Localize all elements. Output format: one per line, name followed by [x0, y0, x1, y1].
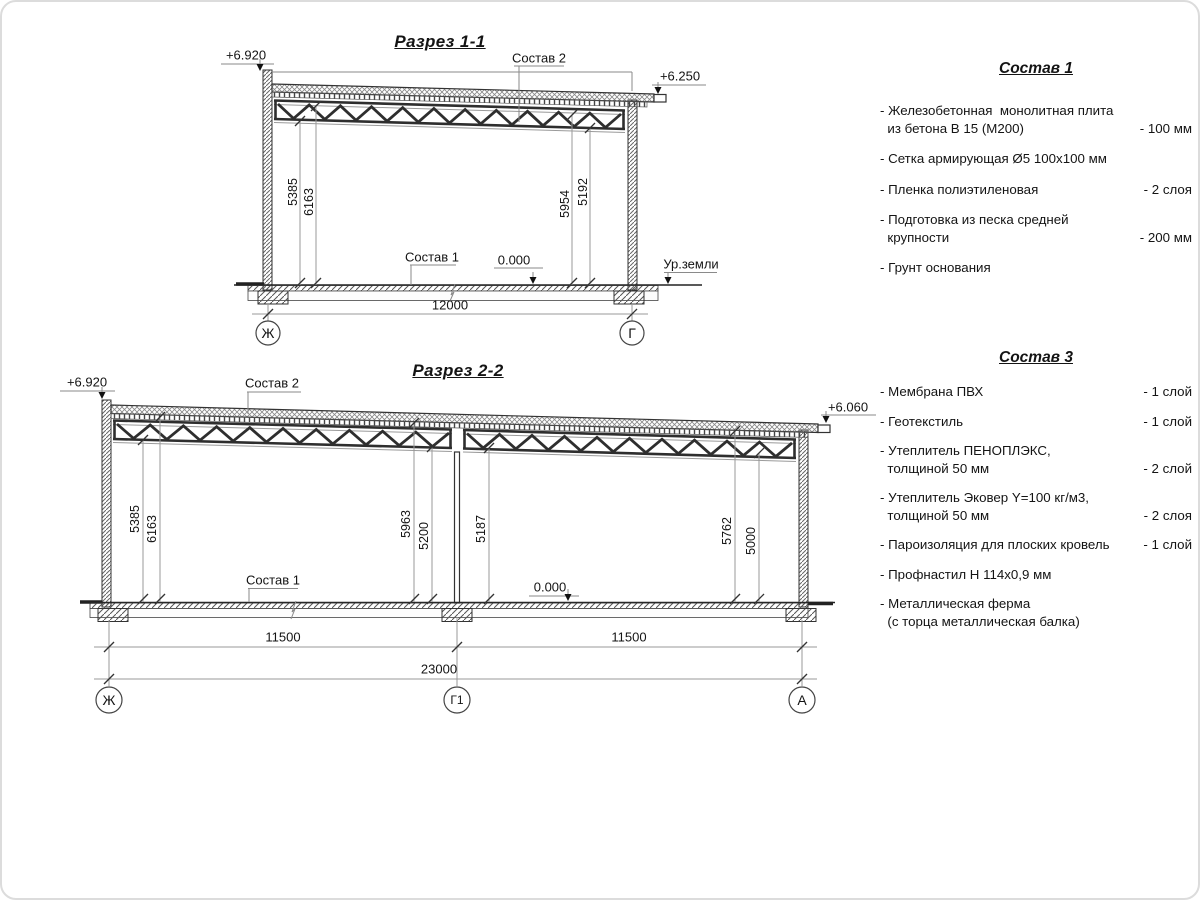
layer-text: - Пароизоляция для плоских кровель: [880, 536, 1110, 554]
section-2-2-title: Разрез 2-2: [412, 361, 503, 381]
layer-value: - 2 слой: [1135, 460, 1192, 478]
layer-value: - 100 мм: [1132, 120, 1192, 138]
span-dim-11500-left: 11500: [265, 630, 300, 645]
layer-item: - Пленка полиэтиленовая - 2 слоя: [880, 181, 1192, 199]
callout-sostav2-s1: Состав 2: [512, 51, 566, 66]
layer-value: - 1 слой: [1135, 413, 1192, 431]
callout-sostav2-s2: Состав 2: [245, 376, 299, 391]
dim-5963-s2: 5963: [399, 510, 413, 538]
layer-item: - Пароизоляция для плоских кровель - 1 с…: [880, 536, 1192, 554]
composition-1-panel: Состав 1 - Железобетонная монолитная пли…: [880, 60, 1192, 290]
layer-item: - Утеплитель ПЕНОПЛЭКС, толщиной 50 мм -…: [880, 442, 1192, 477]
callout-sostav1-s1: Состав 1: [405, 250, 459, 265]
dim-5762-s2: 5762: [720, 517, 734, 545]
span-dim-23000: 23000: [421, 662, 457, 677]
dim-5000-s2: 5000: [744, 527, 758, 555]
layer-text: - Пленка полиэтиленовая: [880, 181, 1038, 199]
span-dim-12000: 12000: [432, 298, 468, 313]
section-1-1-title: Разрез 1-1: [394, 32, 485, 52]
drawing-sheet: Разрез 1-1 +6.920 Состав 2 +6.250 5385 6…: [0, 0, 1200, 900]
elevation-mark-6250-s1: +6.250: [660, 69, 700, 84]
composition-1-title: Состав 1: [880, 60, 1192, 78]
layer-text: - Утеплитель ПЕНОПЛЭКС, толщиной 50 мм: [880, 442, 1051, 477]
layer-item: - Утеплитель Эковер Y=100 кг/м3, толщино…: [880, 489, 1192, 524]
axis-bubble-zh-s1: Ж: [262, 325, 275, 341]
zero-level-s2: 0.000: [534, 580, 567, 595]
layer-item: - Профнастил Н 114х0,9 мм: [880, 566, 1192, 584]
axis-bubble-zh-s2: Ж: [103, 692, 116, 708]
ground-level-label: Ур.земли: [663, 257, 718, 272]
dim-5954-s1: 5954: [558, 190, 572, 218]
dim-5385-s2: 5385: [128, 505, 142, 533]
layer-item: - Металлическая ферма (с торца металличе…: [880, 595, 1192, 630]
dim-5192-s1: 5192: [576, 178, 590, 206]
layer-item: - Геотекстиль - 1 слой: [880, 413, 1192, 431]
dim-5187-s2: 5187: [474, 515, 488, 543]
layer-value: - 1 слой: [1135, 383, 1192, 401]
layer-item: - Мембрана ПВХ - 1 слой: [880, 383, 1192, 401]
dim-5200-s2: 5200: [417, 522, 431, 550]
layer-text: - Профнастил Н 114х0,9 мм: [880, 566, 1051, 584]
layer-value: - 1 слой: [1135, 536, 1192, 554]
section-1-1-axis-bubbles: [256, 321, 644, 345]
elevation-mark-6920-s1: +6.920: [226, 48, 266, 63]
composition-3-title: Состав 3: [880, 349, 1192, 367]
axis-bubble-g-s1: Г: [628, 325, 636, 341]
layer-text: - Геотекстиль: [880, 413, 963, 431]
axis-bubble-g1-s2: Г1: [450, 693, 463, 707]
layer-text: - Сетка армирующая Ø5 100х100 мм: [880, 150, 1107, 168]
layer-text: - Грунт основания: [880, 259, 991, 277]
layer-value: - 2 слоя: [1136, 181, 1192, 199]
dim-6163-s2: 6163: [145, 515, 159, 543]
section-2-2-roof: [111, 405, 830, 438]
layer-text: - Утеплитель Эковер Y=100 кг/м3, толщино…: [880, 489, 1089, 524]
layer-value: - 200 мм: [1132, 229, 1192, 247]
elevation-mark-6060-s2: +6.060: [828, 400, 868, 415]
zero-level-s1: 0.000: [498, 253, 531, 268]
layer-text: - Железобетонная монолитная плита из бет…: [880, 102, 1113, 137]
layer-text: - Мембрана ПВХ: [880, 383, 983, 401]
section-1-1-roof: [272, 84, 666, 107]
dim-6163-s1: 6163: [302, 188, 316, 216]
layer-item: - Сетка армирующая Ø5 100х100 мм: [880, 150, 1192, 168]
layer-value: - 2 слоя: [1136, 507, 1192, 525]
callout-sostav1-s2: Состав 1: [246, 573, 300, 588]
layer-item: - Грунт основания: [880, 259, 1192, 277]
span-dim-11500-right: 11500: [611, 630, 646, 645]
layer-text: - Металлическая ферма (с торца металличе…: [880, 595, 1080, 630]
composition-3-panel: Состав 3 - Мембрана ПВХ - 1 слой - Геоте…: [880, 349, 1192, 642]
layer-item: - Подготовка из песка средней крупности …: [880, 211, 1192, 246]
elevation-mark-6920-s2: +6.920: [67, 375, 107, 390]
axis-bubble-a-s2: А: [797, 692, 806, 708]
layer-text: - Подготовка из песка средней крупности: [880, 211, 1069, 246]
dim-5385-s1: 5385: [286, 178, 300, 206]
layer-item: - Железобетонная монолитная плита из бет…: [880, 102, 1192, 137]
